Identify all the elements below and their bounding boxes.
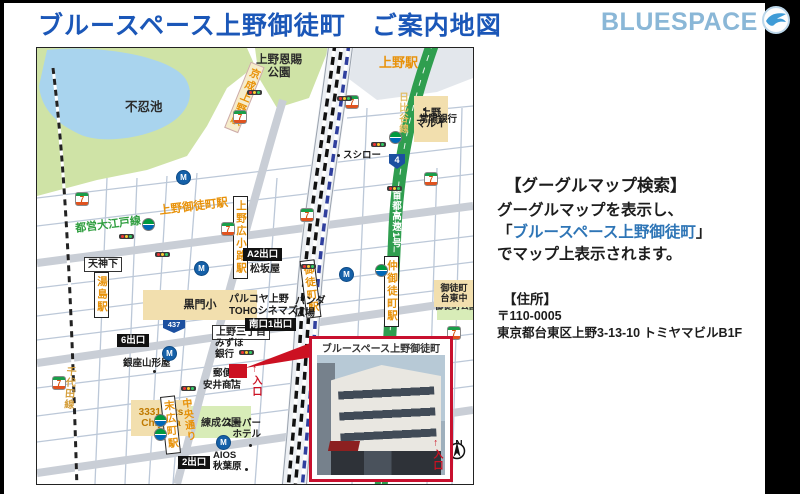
exit-2-suehiro-label: 2出口 xyxy=(178,456,210,469)
matsuzakaya-label: 松坂屋 xyxy=(242,261,288,278)
metro-glyph: M xyxy=(180,173,187,182)
metro-glyph: M xyxy=(198,264,205,273)
postal-code: 〒110-0005 xyxy=(497,308,765,325)
area-map: 不忍池 上野恩賜 公園 練成公園 御徒町公園 上野駅 上野御徒町駅 京成上野駅 … xyxy=(36,47,474,485)
tenjinshita-label: 天神下 xyxy=(84,257,122,272)
brand-logo-text: BLUESPACE xyxy=(601,8,758,37)
poi-dot xyxy=(153,370,156,373)
poi-joyo-bank: 常陽銀行 xyxy=(419,114,457,125)
seven-glyph: 7 xyxy=(80,195,84,204)
photo-windows xyxy=(337,375,436,442)
seven-glyph: 7 xyxy=(57,379,61,388)
metro-icon: M xyxy=(339,267,354,282)
page-title: ブルースペース上野御徒町 ご案内地図 xyxy=(38,6,502,42)
seven-glyph: 7 xyxy=(226,225,230,234)
poi-aios-l1: AIOS xyxy=(213,450,242,461)
poi-mizuho-l1: みずほ xyxy=(215,338,244,349)
poi-parcoya-l2: TOHOシネマズ xyxy=(229,306,298,318)
taito-junior-high-building: 御徒町 台東中 xyxy=(434,280,474,307)
brand-logo: BLUESPACE xyxy=(601,5,791,40)
poi-parcoya-l1: パルコヤ上野 xyxy=(229,294,298,306)
poi-panda-square: パンダ 広場 xyxy=(295,296,326,320)
building-photo: ←入口 xyxy=(317,355,445,475)
photo-awning xyxy=(328,441,360,451)
poi-dot xyxy=(231,379,234,382)
frame-left xyxy=(0,0,4,494)
traffic-signal-icon xyxy=(337,96,352,101)
ueno-hirokoji-station-label: 上野広小路駅 xyxy=(233,196,248,279)
poi-yasui-shoten: 安井商店 xyxy=(203,380,241,391)
search-line3: でマップ上表示されます。 xyxy=(497,244,765,266)
metro-glyph: M xyxy=(343,270,350,279)
familymart-icon xyxy=(389,131,402,144)
traffic-signal-icon xyxy=(119,234,134,239)
seven-eleven-icon: 7 xyxy=(221,222,235,236)
ueno-station-label: 上野駅 xyxy=(379,52,418,71)
traffic-signal-icon xyxy=(247,90,262,95)
familymart-icon xyxy=(154,428,167,441)
exit-6-label: 6出口 xyxy=(117,334,149,347)
frame-top xyxy=(0,0,800,3)
hibiya-line-label: 日比谷線 xyxy=(395,92,409,134)
poi-ginza-yamagataya: 銀座山形屋 xyxy=(123,358,171,369)
metro-glyph: M xyxy=(166,349,173,358)
exit-a2-label: A2出口 xyxy=(243,248,282,261)
poi-parcoya-toho: パルコヤ上野 TOHOシネマズ xyxy=(229,294,298,318)
poi-dot xyxy=(423,108,426,111)
poi-panda-l1: パンダ xyxy=(295,296,326,308)
photo-storefront xyxy=(331,451,441,475)
bracket-close: 」 xyxy=(696,224,712,241)
poi-super-hotel-l1: スーパー xyxy=(215,418,261,429)
seven-glyph: 7 xyxy=(429,175,433,184)
taito-junior-l2: 台東中 xyxy=(440,294,467,304)
poi-dot xyxy=(245,468,248,471)
traffic-signal-icon xyxy=(371,142,386,147)
address-heading: 【住所】 xyxy=(497,288,765,308)
metro-icon: M xyxy=(194,261,209,276)
shuto-expressway-label: 首都高速1号 xyxy=(388,190,402,249)
pointer-arrow xyxy=(245,342,315,374)
search-heading: 【グーグルマップ検索】 xyxy=(497,172,765,196)
poi-dot xyxy=(337,154,340,157)
search-highlight: ブルースペース上野御徒町 xyxy=(513,224,696,241)
traffic-signal-icon xyxy=(387,186,402,191)
seven-eleven-icon: 7 xyxy=(424,172,438,186)
familymart-icon xyxy=(142,218,155,231)
bird-icon xyxy=(761,5,791,40)
seven-eleven-icon: 7 xyxy=(75,192,89,206)
bracket-open: 「 xyxy=(497,224,513,241)
frame-right xyxy=(765,0,800,494)
metro-icon: M xyxy=(216,435,231,450)
inset-entrance-label: ←入口 xyxy=(429,438,444,471)
seven-glyph: 7 xyxy=(305,211,309,220)
traffic-signal-icon xyxy=(181,386,196,391)
metro-icon: M xyxy=(176,170,191,185)
south-exit-1-label: 南口1出口 xyxy=(245,318,296,331)
poi-sushiro: スシロー xyxy=(343,150,381,161)
seven-glyph: 7 xyxy=(238,113,242,122)
poi-aios-l2: 秋葉原 xyxy=(213,461,242,472)
seven-eleven-icon: 7 xyxy=(52,376,66,390)
search-line1: グーグルマップを表示し、 xyxy=(497,200,765,222)
metro-glyph: M xyxy=(220,438,227,447)
familymart-icon xyxy=(154,414,167,427)
pond-label: 不忍池 xyxy=(125,100,163,114)
instructions-panel: 【グーグルマップ検索】 グーグルマップを表示し、 「ブルースペース上野御徒町」 … xyxy=(497,172,765,342)
search-line2: 「ブルースペース上野御徒町」 xyxy=(497,222,765,244)
building-photo-inset: ブルースペース上野御徒町 ←入口 xyxy=(309,336,453,482)
traffic-signal-icon xyxy=(155,252,170,257)
poi-panda-l2: 広場 xyxy=(295,308,326,320)
traffic-signal-icon xyxy=(301,264,316,269)
seven-eleven-icon: 7 xyxy=(300,208,314,222)
yushima-station-label: 湯島駅 xyxy=(94,272,109,318)
poi-dot xyxy=(249,444,252,447)
address-line: 東京都台東区上野3-13-10 トミヤマビルB1F xyxy=(497,325,765,342)
poi-aios-akihabara: AIOS 秋葉原 xyxy=(213,450,242,473)
familymart-icon xyxy=(375,264,388,277)
inset-title: ブルースペース上野御徒町 xyxy=(312,339,450,355)
metro-icon: M xyxy=(162,346,177,361)
seven-eleven-icon: 7 xyxy=(233,110,247,124)
